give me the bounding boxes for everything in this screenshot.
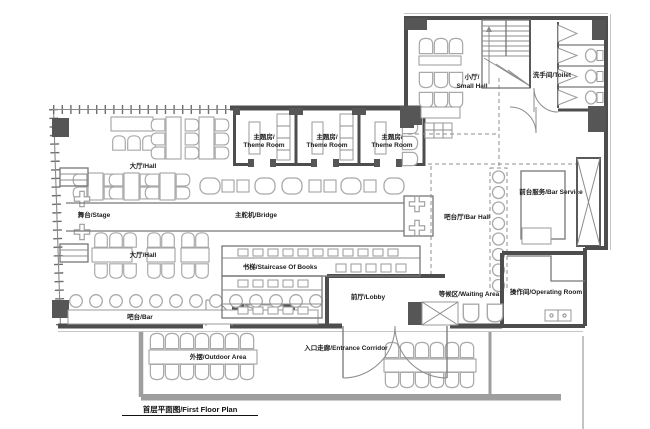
waiting-area: 等候区/Waiting Area [408, 289, 503, 325]
floor-plan-page: 外摆/Outdoor Area 大厅/Ha [0, 0, 650, 429]
label-outdoor-area: 外摆/Outdoor Area [190, 352, 247, 361]
label-small-hall-zh: 小厅/ [464, 72, 480, 81]
label-toilet: 洗手间/Toilet [533, 70, 572, 79]
plan-title: 首层平面图/First Floor Plan [143, 404, 238, 414]
label-theme-room-2-en: Theme Room [306, 142, 347, 149]
bar-service: 前台服务/Bar Service [519, 171, 583, 244]
label-operating-room: 操作间/Operating Room [510, 287, 582, 296]
label-theme-room-1-en: Theme Room [243, 142, 284, 149]
bridge: 主舵机/Bridge [66, 196, 433, 236]
label-waiting-area: 等候区/Waiting Area [438, 289, 500, 298]
hall-upper: 大厅/Hall [73, 117, 404, 200]
staircase [482, 20, 558, 112]
label-entrance-corridor: 入口走廊/Entrance Corridor [303, 343, 388, 352]
operating-room: 操作间/Operating Room [502, 253, 585, 326]
label-bridge: 主舵机/Bridge [235, 210, 277, 219]
floor-plan-canvas: 外摆/Outdoor Area 大厅/Ha [0, 0, 650, 429]
label-theme-room-2-zh: 主题房/ [316, 132, 338, 141]
label-hall-lower: 大厅/Hall [130, 250, 157, 259]
label-small-hall-en: Small Hall [456, 83, 487, 90]
label-bar: 吧台/Bar [127, 312, 153, 321]
toilet: 洗手间/Toilet [533, 14, 611, 250]
label-theme-room-3-en: Theme Room [371, 142, 412, 149]
lift-shaft [577, 158, 606, 326]
label-theme-room-3-zh: 主题房/ [381, 132, 403, 141]
theme-room-1: 主题房/ Theme Room [233, 108, 296, 167]
label-bar-hall: 吧台厅/Bar Hall [444, 212, 490, 221]
label-staircase-of-books: 书梯/Staircase Of Books [243, 262, 318, 271]
label-bar-service: 前台服务/Bar Service [519, 187, 583, 196]
outdoor-area: 外摆/Outdoor Area [149, 333, 476, 387]
label-hall-upper: 大厅/Hall [130, 161, 157, 170]
label-lobby: 前厅/Lobby [351, 292, 386, 301]
label-theme-room-1-zh: 主题房/ [253, 132, 275, 141]
hall-lower: 大厅/Hall [92, 233, 209, 278]
theme-room-2: 主题房/ Theme Room [296, 108, 359, 167]
title-block: 首层平面图/First Floor Plan [122, 404, 258, 416]
label-stage: 舞台/Stage [78, 210, 111, 219]
